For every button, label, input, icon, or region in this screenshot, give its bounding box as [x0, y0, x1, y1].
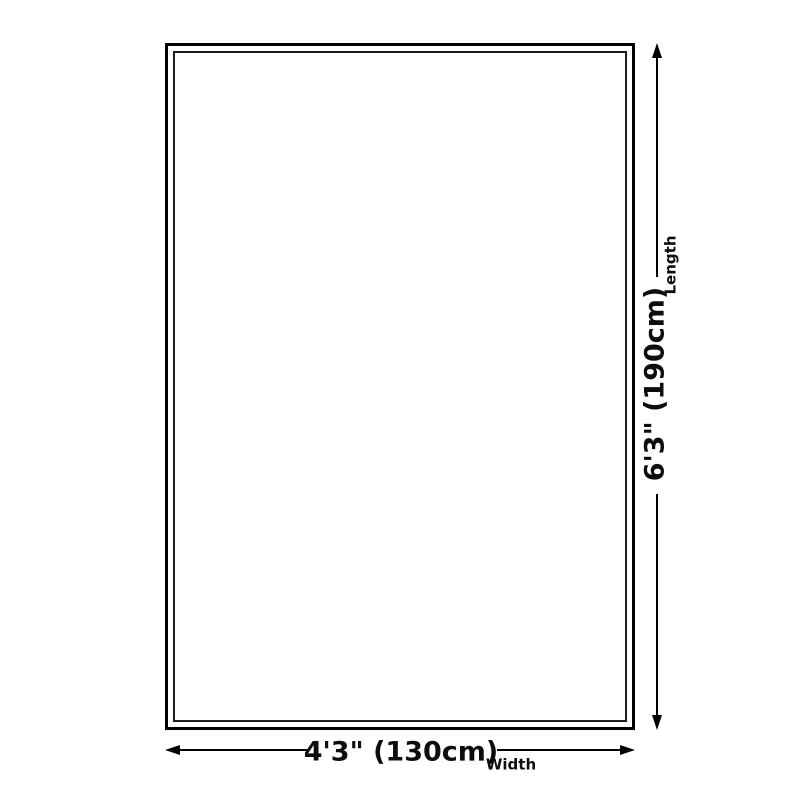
size-diagram: 6'3" (190cm) Length 4'3" (130cm) Width [0, 0, 800, 800]
length-axis-label: Length [664, 236, 679, 295]
length-value: 6'3" (190cm) [642, 287, 669, 481]
dimension-arrows [0, 0, 800, 800]
width-value: 4'3" (130cm) [304, 739, 498, 766]
width-axis-label: Width [486, 758, 536, 773]
